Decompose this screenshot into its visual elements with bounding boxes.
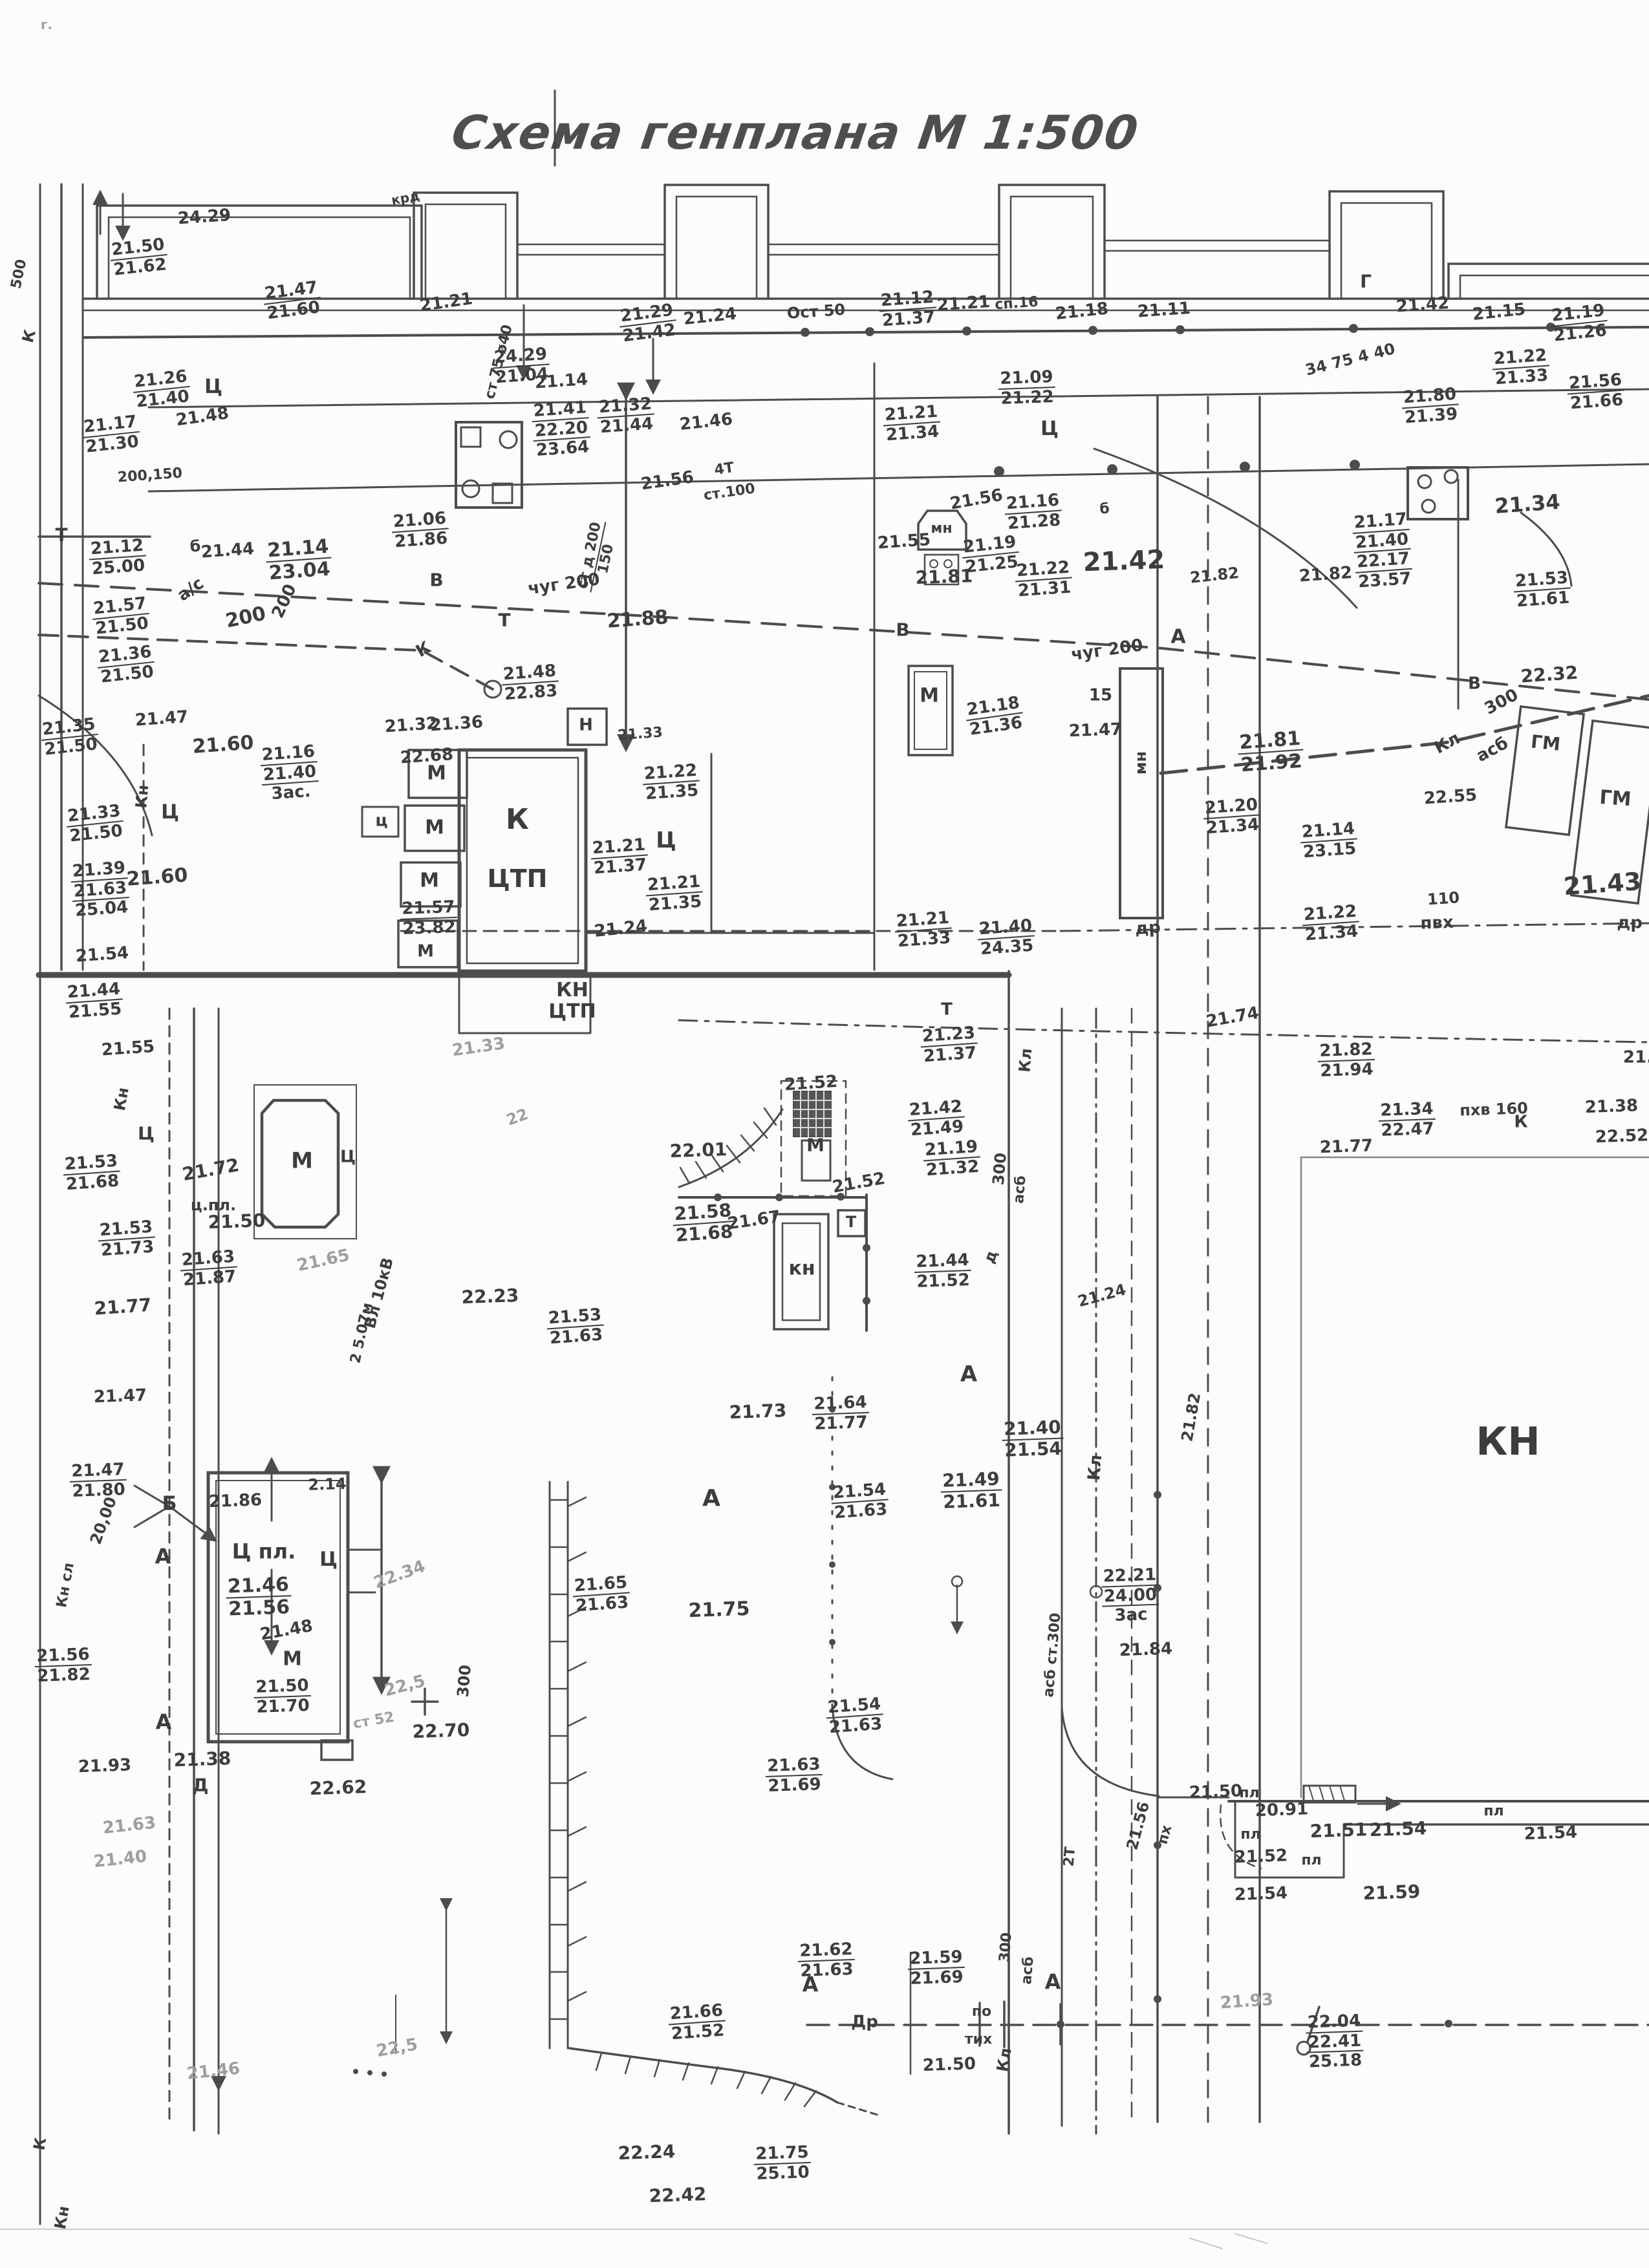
elevation-mark: 21.4421.55 bbox=[65, 979, 124, 1022]
map-label: 22.24 bbox=[616, 2142, 678, 2164]
map-label: 34 75 4 40 bbox=[1302, 339, 1399, 379]
label-line: пл bbox=[1299, 1853, 1323, 1868]
label-line: 21.32 bbox=[923, 1157, 982, 1180]
map-label: 22.01 bbox=[667, 1140, 729, 1162]
map-label: В bbox=[894, 621, 911, 641]
label-line: М bbox=[289, 1149, 315, 1173]
label-line: Ц bbox=[136, 1124, 156, 1144]
labels-layer: г.крд21.5021.6224.2921.4721.6021.2121.29… bbox=[0, 0, 1649, 2268]
label-line: асб bbox=[1019, 1954, 1037, 1987]
map-label: 22.32 bbox=[1518, 663, 1580, 687]
label-line: 21.34 bbox=[1203, 815, 1262, 838]
label-line: 21.57 bbox=[400, 898, 457, 920]
elevation-mark: 21.4421.52 bbox=[914, 1251, 972, 1291]
map-label: 22.62 bbox=[307, 1777, 369, 1799]
elevation-mark: 21.2121.33 bbox=[894, 908, 953, 950]
map-label: 21.52 bbox=[829, 1169, 889, 1197]
genplan-scan-page: Схема генплана М 1:500 bbox=[0, 0, 1649, 2268]
map-label: К bbox=[504, 804, 531, 835]
label-line: 21.64 bbox=[812, 1393, 869, 1415]
map-label: 21.40 bbox=[91, 1847, 150, 1872]
map-label: 21.33 bbox=[449, 1034, 508, 1061]
label-line: 21.38 bbox=[171, 1749, 233, 1771]
label-line: 22 bbox=[502, 1105, 532, 1129]
map-label: ст.100 bbox=[701, 481, 759, 504]
map-label: 300 bbox=[1480, 685, 1524, 720]
label-line: 22.24 bbox=[616, 2142, 678, 2164]
elevation-mark: 21.2121.35 bbox=[645, 872, 704, 914]
elevation-mark: 21.3321.50 bbox=[65, 802, 125, 846]
map-label: Т bbox=[939, 1001, 954, 1020]
label-line: ГМ bbox=[1528, 732, 1564, 755]
elevation-mark: 21.2221.31 bbox=[1014, 558, 1073, 600]
label-line: 22.42 bbox=[647, 2185, 709, 2207]
elevation-mark: 21.4921.61 bbox=[940, 1470, 1003, 1513]
label-line: 21.82 bbox=[1178, 1389, 1204, 1444]
label-line: Т bbox=[939, 1001, 954, 1020]
label-line: 21.28 bbox=[1005, 511, 1063, 533]
label-line: 300 bbox=[989, 1150, 1009, 1188]
label-line: 21.54 bbox=[1522, 1823, 1579, 1844]
label-line: 22.41 bbox=[1306, 2031, 1363, 2053]
map-label: 110 bbox=[1425, 889, 1462, 908]
map-label: ц bbox=[373, 812, 389, 831]
label-line: А bbox=[1043, 1971, 1063, 1993]
label-line: 22.04 bbox=[1305, 2012, 1363, 2034]
label-line: 21.81 bbox=[913, 566, 975, 588]
map-label: КНЦТП bbox=[546, 979, 598, 1022]
map-label: КН bbox=[1474, 1420, 1542, 1463]
label-line: г. bbox=[39, 17, 54, 32]
label-line: 2Т bbox=[1061, 1845, 1079, 1869]
label-line: 21.59 bbox=[1361, 1882, 1423, 1904]
map-label: 21.38 bbox=[1582, 1097, 1640, 1117]
elevation-mark: 21.8021.39 bbox=[1401, 385, 1460, 427]
map-label: 21.24 bbox=[1074, 1281, 1130, 1311]
label-line: асб ст.300 bbox=[1041, 1610, 1064, 1700]
label-line: 21.35 bbox=[646, 892, 704, 915]
map-label: 21.47 bbox=[133, 708, 191, 731]
label-line: 21.15 bbox=[1470, 300, 1529, 325]
map-label: чуг 200 bbox=[525, 570, 603, 599]
label-line: 21.31 bbox=[1015, 578, 1073, 601]
label-line: КН bbox=[546, 979, 598, 1001]
elevation-mark: 21.0621.86 bbox=[391, 509, 450, 551]
map-label: г. bbox=[39, 17, 54, 32]
label-line: М bbox=[415, 943, 436, 961]
label-line: 21.82 bbox=[1297, 564, 1355, 586]
elevation-mark: 21.2221.34 bbox=[1301, 902, 1361, 944]
label-line: М bbox=[804, 1136, 826, 1156]
map-label: 21.33 bbox=[615, 725, 665, 744]
map-label: 21.42 bbox=[1394, 294, 1452, 317]
map-label: асб bbox=[1019, 1954, 1037, 1987]
map-label: 20.91 bbox=[1253, 1800, 1310, 1821]
label-line: 21.50 bbox=[1187, 1782, 1244, 1803]
map-label: 21.15 bbox=[1470, 300, 1529, 325]
elevation-mark: 21.1423.15 bbox=[1299, 819, 1359, 861]
map-label: 21.73 bbox=[727, 1401, 789, 1423]
label-line: 23.57 bbox=[1355, 569, 1414, 592]
map-label: Ц bbox=[654, 828, 678, 852]
map-label: В bbox=[1466, 675, 1483, 694]
map-label: пх bbox=[1155, 1822, 1176, 1848]
label-line: 20,00 bbox=[87, 1493, 121, 1548]
label-line: Ц bbox=[654, 828, 678, 852]
map-label: 21.48 bbox=[173, 404, 232, 431]
label-line: 21.54 bbox=[1232, 1884, 1289, 1905]
label-line: 21.42 bbox=[1394, 294, 1452, 317]
map-label: Г bbox=[1358, 272, 1374, 292]
map-label: 24.29 bbox=[175, 206, 233, 229]
label-line: чуг 200 bbox=[525, 570, 603, 599]
label-line: 22.32 bbox=[1518, 663, 1580, 687]
label-line: 22.47 bbox=[1379, 1119, 1436, 1140]
map-label: Т bbox=[496, 611, 512, 631]
label-line: Т bbox=[53, 526, 69, 546]
map-label: асб bbox=[1011, 1173, 1029, 1206]
label-line: М bbox=[918, 685, 941, 707]
label-line: 24.29 bbox=[175, 206, 233, 229]
map-label: А bbox=[700, 1486, 722, 1512]
map-label: Ост 50 bbox=[784, 301, 848, 322]
label-line: 21.21 bbox=[416, 290, 475, 316]
elevation-mark: 21.1621.28 bbox=[1004, 491, 1063, 533]
label-line: А bbox=[700, 1486, 722, 1512]
map-label: М bbox=[281, 1649, 304, 1670]
map-label: мн bbox=[1132, 749, 1149, 776]
map-label: Кн bbox=[111, 1084, 132, 1114]
label-line: пл bbox=[1482, 1804, 1505, 1819]
map-label: 4Т bbox=[711, 460, 737, 478]
label-line: 21.77 bbox=[812, 1413, 870, 1433]
label-line: 300 bbox=[1480, 685, 1524, 720]
label-line: др bbox=[1615, 914, 1644, 933]
label-line: 21.93 bbox=[1218, 1991, 1276, 2013]
map-label: 21.36 bbox=[427, 713, 486, 736]
elevation-mark: 21.8221.94 bbox=[1317, 1040, 1375, 1080]
label-line: ГМ bbox=[1597, 787, 1633, 811]
label-line: 3ас bbox=[1102, 1605, 1159, 1626]
label-line: 21.92 bbox=[1238, 750, 1305, 776]
label-line: 21.33 bbox=[615, 725, 665, 744]
map-label: 21.24 bbox=[592, 917, 651, 941]
map-label: 21.56 bbox=[638, 468, 696, 495]
map-label: 21.14 bbox=[532, 370, 590, 393]
label-line: 21.44 bbox=[914, 1251, 971, 1273]
label-line: 21.63 bbox=[547, 1325, 605, 1348]
map-label: 300 bbox=[989, 1150, 1009, 1188]
map-label: 21.47 bbox=[91, 1386, 149, 1407]
map-label: Б bbox=[160, 1493, 179, 1515]
label-line: А bbox=[958, 1362, 979, 1386]
map-label: 21.59 bbox=[1361, 1882, 1423, 1904]
map-label: 22.23 bbox=[459, 1286, 521, 1308]
label-line: 21.77 bbox=[92, 1295, 154, 1319]
elevation-mark: 21.4221.49 bbox=[907, 1097, 966, 1139]
elevation-mark: 21.1921.32 bbox=[922, 1137, 982, 1179]
map-label: 21.93 bbox=[76, 1756, 133, 1777]
elevation-mark: 21.3521.50 bbox=[39, 715, 100, 759]
map-label: 21.54 bbox=[1232, 1884, 1289, 1905]
label-line: А bbox=[153, 1545, 173, 1568]
label-line: 21.52 bbox=[914, 1270, 972, 1291]
label-line: А bbox=[1169, 626, 1187, 648]
label-line: 21.94 bbox=[1318, 1060, 1375, 1080]
label-line: 21.69 bbox=[766, 1775, 823, 1795]
map-label: пл bbox=[1237, 1786, 1261, 1801]
label-line: 21.40 bbox=[91, 1847, 150, 1872]
map-label: А bbox=[1043, 1971, 1063, 1993]
map-label: М bbox=[289, 1149, 315, 1173]
label-line: по bbox=[970, 2004, 993, 2020]
map-label: М bbox=[415, 943, 436, 961]
label-line: 21.56 bbox=[947, 486, 1006, 513]
label-line: 21.22 bbox=[998, 387, 1056, 408]
elevation-mark: 21.5321.73 bbox=[97, 1217, 156, 1259]
label-line: 21.24 bbox=[1074, 1281, 1130, 1311]
map-label: 21.6 bbox=[1621, 1049, 1649, 1067]
map-label: М bbox=[918, 685, 941, 707]
elevation-mark: 21.2221.35 bbox=[641, 761, 701, 803]
label-line: В bbox=[427, 571, 445, 591]
label-line: мн bbox=[929, 521, 954, 537]
map-label: пл bbox=[1482, 1804, 1505, 1819]
elevation-mark: 21.8121.92 bbox=[1236, 728, 1304, 776]
elevation-mark: 21.3921.6325.04 bbox=[70, 859, 131, 921]
map-label: а/с bbox=[173, 573, 209, 606]
label-line: 21.63 bbox=[765, 1755, 823, 1777]
label-line: 200 bbox=[222, 603, 270, 633]
label-line: Ост 50 bbox=[784, 301, 848, 322]
label-line: 21.35 bbox=[643, 781, 701, 804]
label-line: 21.72 bbox=[179, 1155, 242, 1186]
map-label: 21.56 bbox=[1123, 1798, 1154, 1854]
label-line: 21.47 bbox=[1066, 720, 1124, 741]
label-line: 21.93 bbox=[76, 1756, 133, 1777]
label-line: 500 bbox=[8, 256, 30, 292]
label-line: 22.21 bbox=[1101, 1566, 1158, 1588]
label-line: 21.52 bbox=[669, 2021, 727, 2044]
label-line: 22.23 bbox=[459, 1286, 521, 1308]
map-label: ЦТП bbox=[486, 866, 550, 893]
label-line: 25.00 bbox=[89, 556, 147, 579]
map-label: 21.52 bbox=[1232, 1846, 1289, 1867]
label-line: 22.52 bbox=[1593, 1126, 1649, 1147]
label-line: 34 75 4 40 bbox=[1302, 339, 1399, 379]
map-label: пл bbox=[1299, 1853, 1323, 1868]
elevation-mark: 21.2021.34 bbox=[1202, 795, 1262, 837]
label-line: 21.54 bbox=[1002, 1439, 1064, 1460]
label-line: 21.33 bbox=[1493, 366, 1551, 389]
map-label: 21.50 bbox=[920, 2055, 978, 2075]
elevation-mark: 22.0422.4125.18 bbox=[1305, 2012, 1364, 2072]
map-label: кн bbox=[786, 1258, 817, 1279]
elevation-mark: 21.5721.50 bbox=[91, 594, 151, 638]
map-label: 21.55 bbox=[99, 1038, 157, 1060]
label-line: Ц bbox=[318, 1549, 339, 1570]
map-label: 21.11 bbox=[1135, 299, 1193, 322]
map-label: б bbox=[1097, 502, 1111, 517]
label-line: 21.34 bbox=[883, 422, 942, 445]
label-line: Кн bbox=[111, 1084, 132, 1114]
label-line: 22.83 bbox=[502, 681, 560, 704]
map-label: 21.34 bbox=[1492, 491, 1562, 519]
elevation-mark: 21.4721.60 bbox=[262, 278, 323, 323]
label-line: 21.14 bbox=[532, 370, 590, 393]
map-label: 21.84 bbox=[1117, 1640, 1174, 1660]
map-label: Н bbox=[577, 716, 595, 735]
label-line: 200,150 bbox=[115, 465, 185, 486]
map-label: по bbox=[970, 2004, 993, 2020]
label-line: 22.34 bbox=[370, 1556, 430, 1593]
label-line: 21.52 bbox=[1232, 1846, 1289, 1867]
elevation-mark: 21.5321.63 bbox=[546, 1305, 605, 1347]
label-line: 24.35 bbox=[978, 936, 1036, 959]
map-label: 200 bbox=[222, 603, 270, 633]
map-label: 22.42 bbox=[647, 2185, 709, 2207]
label-line: Кн bbox=[51, 2203, 72, 2232]
elevation-mark: 21.2321.37 bbox=[920, 1023, 979, 1065]
label-line: Т bbox=[496, 611, 512, 631]
label-line: 21.6 bbox=[1621, 1049, 1649, 1067]
elevation-mark: 21.6321.87 bbox=[179, 1247, 239, 1289]
label-line: 21.24 bbox=[592, 917, 651, 941]
elevation-mark: 21.1423.04 bbox=[264, 536, 332, 584]
elevation-mark: 21.1221.37 bbox=[878, 288, 938, 330]
label-line: асб bbox=[1472, 733, 1513, 767]
label-line: Ц bbox=[1039, 418, 1061, 440]
map-label: 21.50 bbox=[206, 1211, 268, 1233]
label-line: ЦТП bbox=[486, 866, 550, 893]
label-line: 21.82 bbox=[1187, 564, 1242, 587]
label-line: д bbox=[980, 1246, 1001, 1268]
label-line: 21.54 bbox=[73, 944, 131, 967]
label-line: 21.24 bbox=[681, 305, 740, 329]
map-label: ГМ bbox=[1528, 732, 1564, 755]
label-line: 200 bbox=[268, 580, 301, 623]
label-line: 21.69 bbox=[908, 1967, 965, 1988]
label-line: 2 5.07м bbox=[348, 1300, 377, 1367]
elevation-mark: 21.1721.4022.1723.57 bbox=[1352, 510, 1414, 592]
map-label: В bbox=[427, 571, 445, 591]
label-line: 21.38 bbox=[1582, 1097, 1640, 1117]
label-line: К bbox=[1512, 1113, 1529, 1132]
elevation-mark: 21.7525.10 bbox=[753, 2143, 812, 2183]
map-label: 21.46 bbox=[677, 410, 736, 434]
label-line: 21.44 bbox=[598, 414, 656, 437]
label-line: 21.33 bbox=[449, 1034, 508, 1061]
label-line: Кн сл bbox=[54, 1559, 78, 1610]
label-line: 21.39 bbox=[1402, 405, 1460, 427]
map-label: асб ст.300 bbox=[1041, 1610, 1064, 1700]
map-label: 21.81 bbox=[913, 566, 975, 588]
label-line: 22,5 bbox=[373, 2035, 421, 2061]
map-label: А bbox=[801, 1973, 821, 1996]
map-label: крд bbox=[388, 188, 422, 208]
map-label: Ц пл. bbox=[230, 1540, 298, 1563]
map-label: 21.50 bbox=[1187, 1782, 1244, 1803]
label-line: чуг 200 bbox=[1068, 636, 1147, 665]
map-label: Кл bbox=[1016, 1045, 1035, 1075]
label-line: пл bbox=[1237, 1786, 1261, 1801]
map-label: 21.51 bbox=[1308, 1820, 1370, 1842]
label-line: 21.18 bbox=[1053, 299, 1112, 324]
label-line: Ц bbox=[202, 376, 224, 398]
label-line: ст.100 bbox=[701, 481, 759, 504]
label-line: 21.65 bbox=[294, 1246, 353, 1276]
elevation-mark: 21.0921.22 bbox=[998, 368, 1056, 408]
map-label: М bbox=[423, 817, 446, 839]
label-line: М bbox=[423, 817, 446, 839]
map-label: Кл bbox=[1085, 1452, 1106, 1484]
label-line: 21.46 bbox=[677, 410, 736, 434]
label-line: 22.62 bbox=[307, 1777, 369, 1799]
label-line: 21.48 bbox=[257, 1616, 316, 1644]
map-label: 21.77 bbox=[1317, 1137, 1375, 1157]
map-label: тих bbox=[963, 2032, 994, 2048]
label-line: 21.43 bbox=[1561, 868, 1644, 901]
label-line: 21.56 bbox=[34, 1645, 92, 1667]
map-label: 21.72 bbox=[179, 1155, 242, 1186]
elevation-mark: 21.4122.2023.64 bbox=[531, 398, 592, 460]
elevation-mark: 21.1721.30 bbox=[81, 412, 142, 456]
map-label: асб bbox=[1472, 733, 1513, 767]
map-label: М bbox=[425, 763, 448, 784]
label-line: крд bbox=[388, 188, 422, 208]
map-label: 22 bbox=[502, 1105, 532, 1129]
label-line: 21.61 bbox=[1514, 588, 1572, 611]
map-label: 21.93 bbox=[1218, 1991, 1276, 2013]
map-label: Ц bbox=[338, 1148, 358, 1167]
map-label: 21.46 bbox=[184, 2059, 243, 2084]
map-label: 21.38 bbox=[171, 1749, 233, 1771]
map-label: Ц bbox=[159, 802, 181, 823]
label-line: 21.73 bbox=[727, 1401, 789, 1423]
map-label: 300 bbox=[454, 1662, 474, 1700]
map-label: 21.54 bbox=[73, 944, 131, 967]
map-label: 21.24 bbox=[681, 305, 740, 329]
elevation-mark: 21.4024.35 bbox=[976, 916, 1036, 958]
elevation-mark: 21.2121.34 bbox=[882, 402, 942, 444]
label-line: 4Т bbox=[711, 460, 737, 478]
label-line: 21.63 bbox=[100, 1813, 159, 1838]
elevation-mark: 21.1225.00 bbox=[88, 536, 147, 578]
elevation-mark: 21.3621.50 bbox=[96, 643, 156, 687]
label-line: 23.64 bbox=[533, 438, 592, 460]
map-label: 22.70 bbox=[410, 1720, 472, 1742]
label-line: 21.60 bbox=[190, 732, 257, 758]
label-line: 21.61 bbox=[941, 1490, 1003, 1512]
map-label: 21.60 bbox=[190, 732, 257, 758]
map-label: ст 52 bbox=[350, 1709, 397, 1733]
label-line: тих bbox=[963, 2032, 994, 2048]
map-label: Т bbox=[844, 1214, 858, 1230]
label-line: 20.91 bbox=[1253, 1800, 1310, 1821]
map-label: Кн bbox=[51, 2203, 72, 2232]
label-line: б bbox=[1097, 502, 1111, 517]
map-label: Кн bbox=[133, 782, 152, 811]
map-label: 21.54 bbox=[1367, 1819, 1429, 1841]
map-label: 300 bbox=[997, 1930, 1016, 1965]
map-label: д bbox=[980, 1246, 1001, 1268]
elevation-mark: 21.2221.33 bbox=[1491, 346, 1551, 388]
map-label: мн bbox=[929, 521, 954, 537]
label-line: мн bbox=[1132, 749, 1149, 776]
map-label: Ц bbox=[202, 376, 224, 398]
label-line: пвх bbox=[1418, 914, 1456, 934]
label-line: М bbox=[281, 1649, 304, 1670]
